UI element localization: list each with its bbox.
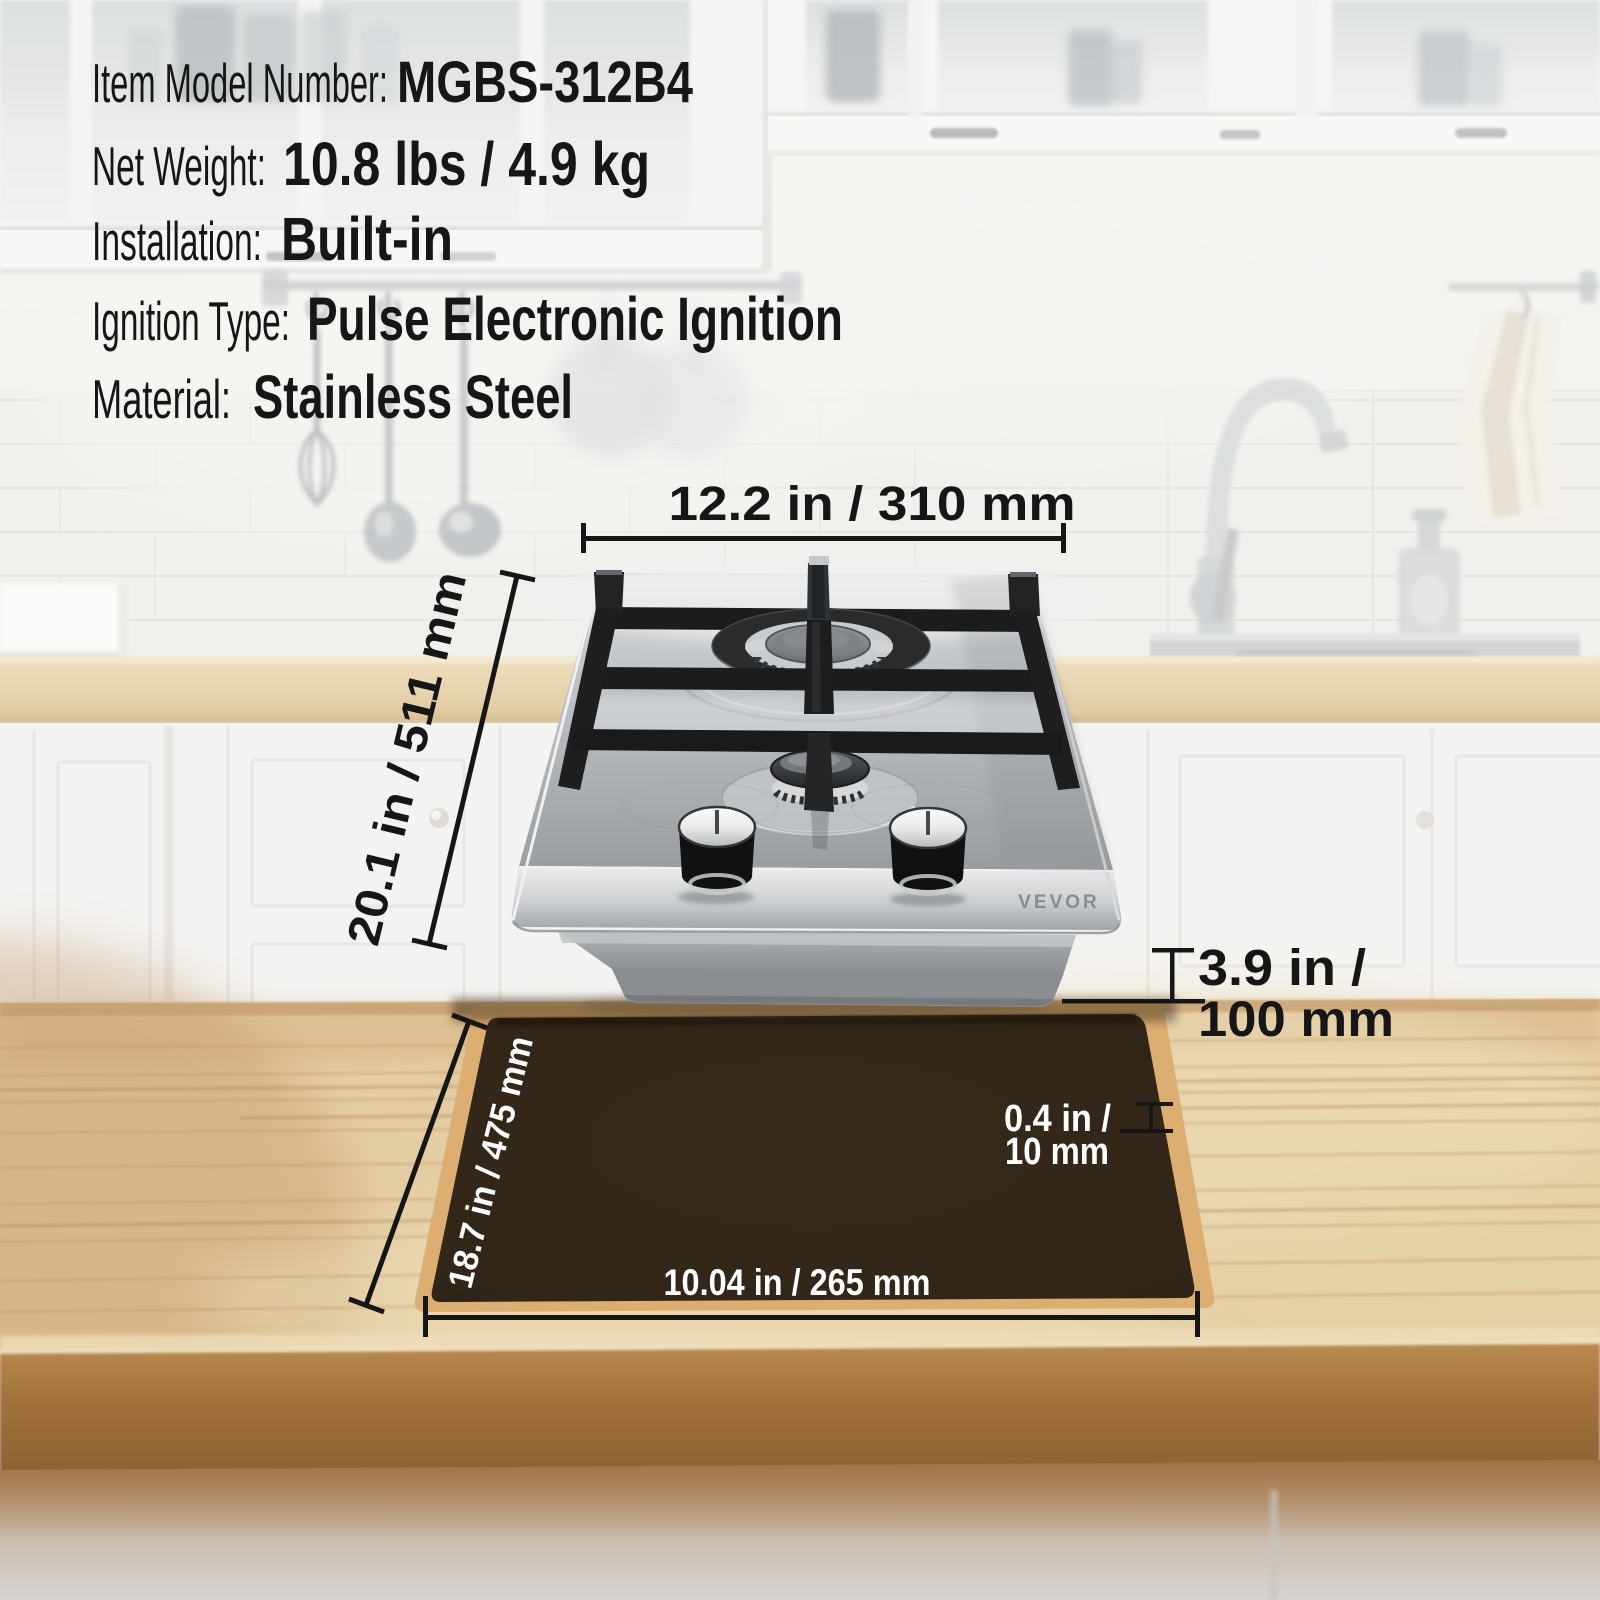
svg-text:10 mm: 10 mm	[1005, 1131, 1109, 1173]
svg-text:Pulse Electronic Ignition: Pulse Electronic Ignition	[307, 285, 843, 353]
svg-text:3.9 in /: 3.9 in /	[1198, 939, 1366, 996]
svg-text:10.8 lbs / 4.9 kg: 10.8 lbs / 4.9 kg	[283, 130, 650, 198]
svg-text:10.04 in / 265 mm: 10.04 in / 265 mm	[664, 1262, 931, 1303]
svg-text:Stainless Steel: Stainless Steel	[253, 363, 573, 431]
svg-text:VEVOR: VEVOR	[1018, 892, 1100, 913]
svg-text:12.2 in / 310 mm: 12.2 in / 310 mm	[669, 478, 1076, 531]
svg-text:Installation:: Installation:	[92, 210, 262, 272]
svg-text:MGBS-312B4: MGBS-312B4	[397, 50, 693, 115]
svg-text:Item Model Number:: Item Model Number:	[92, 52, 388, 114]
svg-text:Material:: Material:	[92, 368, 231, 430]
svg-text:100 mm: 100 mm	[1198, 991, 1394, 1047]
svg-text:Built-in: Built-in	[281, 205, 453, 273]
svg-text:Net Weight:: Net Weight:	[92, 135, 266, 197]
svg-text:Ignition Type:: Ignition Type:	[92, 290, 290, 352]
